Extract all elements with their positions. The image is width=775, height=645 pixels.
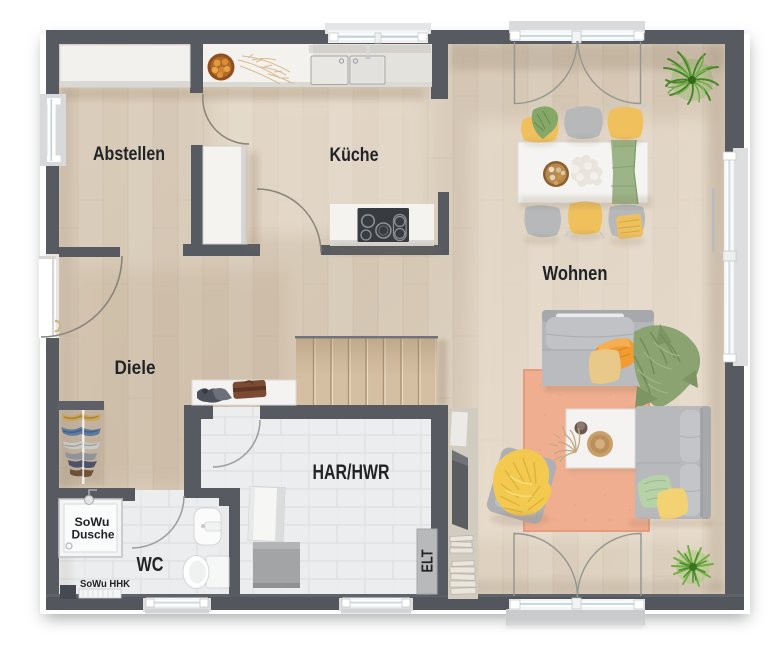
svg-text:Wohnen: Wohnen <box>543 262 608 285</box>
svg-text:Dusche: Dusche <box>72 528 115 542</box>
svg-text:HAR/HWR: HAR/HWR <box>313 461 390 484</box>
svg-text:Abstellen: Abstellen <box>93 143 165 165</box>
svg-text:SoWu HHK: SoWu HHK <box>80 579 131 590</box>
svg-text:WC: WC <box>137 554 164 576</box>
svg-text:Diele: Diele <box>115 357 156 379</box>
svg-text:Küche: Küche <box>330 144 379 166</box>
svg-text:ELT: ELT <box>420 549 437 572</box>
